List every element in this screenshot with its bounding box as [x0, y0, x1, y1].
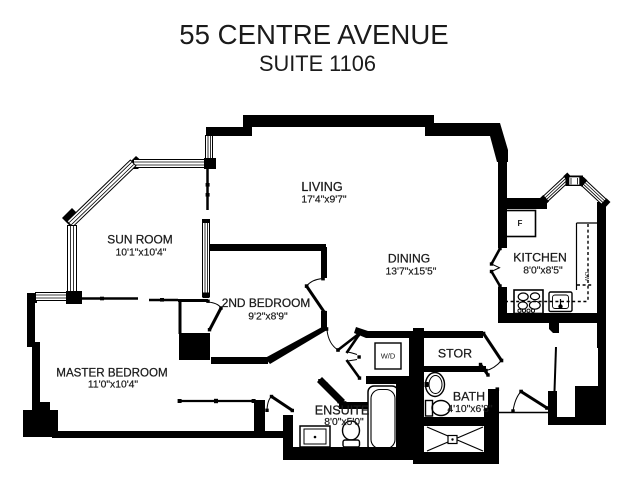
- svg-text:W/D: W/D: [381, 352, 396, 361]
- svg-text:8'0"x5'0": 8'0"x5'0": [324, 417, 364, 428]
- svg-text:LIVING: LIVING: [301, 180, 342, 194]
- svg-text:17'4"x9'7": 17'4"x9'7": [301, 195, 347, 206]
- svg-text:9'2"x8'9": 9'2"x8'9": [248, 312, 288, 323]
- svg-text:KITCHEN: KITCHEN: [513, 251, 567, 265]
- svg-text:STOR: STOR: [438, 347, 472, 361]
- svg-text:SUITE 1106: SUITE 1106: [259, 51, 376, 76]
- svg-text:11'0"x10'4": 11'0"x10'4": [88, 380, 139, 391]
- svg-text:2ND BEDROOM: 2ND BEDROOM: [222, 296, 311, 310]
- svg-text:MASTER BEDROOM: MASTER BEDROOM: [56, 367, 167, 380]
- svg-text:SUN ROOM: SUN ROOM: [107, 233, 172, 247]
- svg-text:BATH: BATH: [453, 390, 485, 404]
- svg-text:DINING: DINING: [388, 252, 430, 266]
- svg-text:F: F: [518, 219, 523, 228]
- svg-text:13'7"x15'5": 13'7"x15'5": [386, 267, 437, 278]
- svg-text:55 CENTRE AVENUE: 55 CENTRE AVENUE: [179, 19, 448, 50]
- svg-text:10'1"x10'4": 10'1"x10'4": [116, 248, 167, 259]
- svg-text:8'0"x8'5": 8'0"x8'5": [523, 266, 563, 277]
- svg-text:DW: DW: [583, 272, 589, 282]
- svg-text:4'10"x6'8": 4'10"x6'8": [447, 404, 493, 415]
- svg-text:ENSUITE: ENSUITE: [315, 404, 370, 418]
